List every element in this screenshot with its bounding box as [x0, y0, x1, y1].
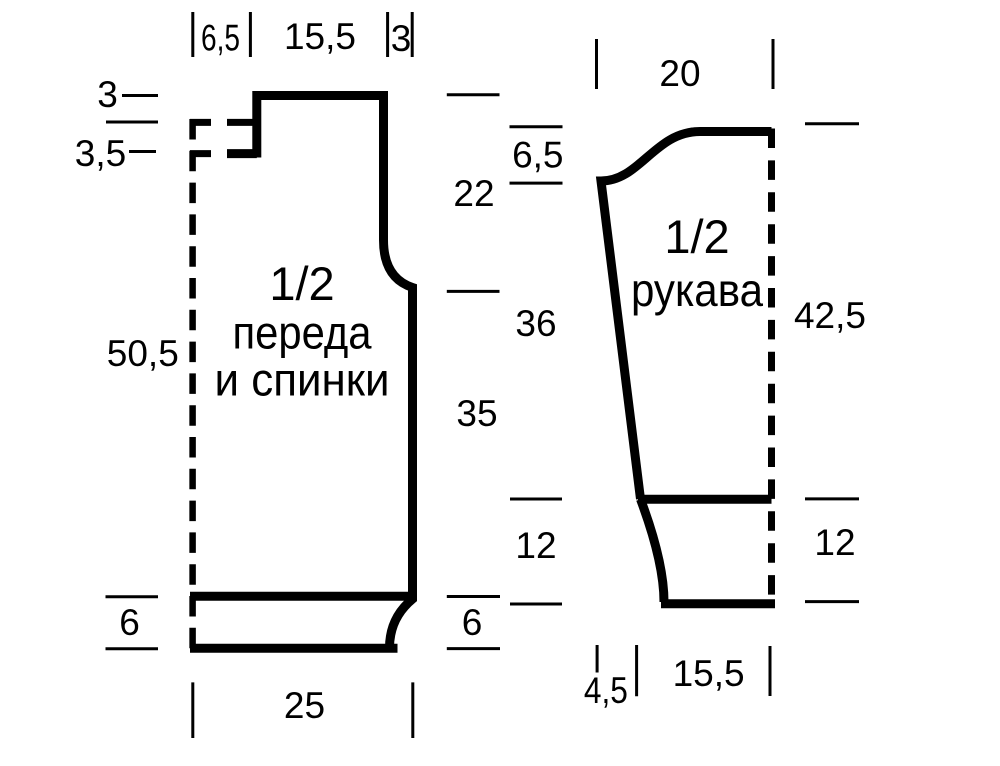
svg-text:25: 25 — [284, 685, 325, 726]
svg-text:6,5: 6,5 — [512, 135, 563, 176]
svg-text:4,5: 4,5 — [584, 670, 628, 711]
svg-text:36: 36 — [515, 303, 556, 344]
svg-text:35: 35 — [456, 393, 497, 434]
svg-text:1/2: 1/2 — [664, 210, 729, 263]
svg-text:12: 12 — [814, 522, 855, 563]
svg-text:рукава: рукава — [631, 264, 763, 316]
svg-text:переда: переда — [233, 307, 372, 359]
svg-text:42,5: 42,5 — [794, 295, 866, 336]
svg-text:6: 6 — [119, 602, 140, 643]
svg-text:22: 22 — [453, 173, 494, 214]
svg-text:12: 12 — [515, 525, 556, 566]
svg-text:и спинки: и спинки — [215, 354, 390, 406]
svg-text:15,5: 15,5 — [673, 653, 745, 694]
svg-text:50,5: 50,5 — [107, 333, 179, 374]
svg-text:3: 3 — [97, 74, 118, 115]
svg-text:6,5: 6,5 — [201, 18, 240, 59]
svg-text:6: 6 — [462, 602, 483, 643]
svg-text:15,5: 15,5 — [284, 16, 356, 57]
svg-text:3: 3 — [391, 18, 412, 59]
svg-text:1/2: 1/2 — [269, 257, 334, 310]
svg-text:3,5: 3,5 — [75, 133, 126, 174]
svg-text:20: 20 — [659, 53, 700, 94]
